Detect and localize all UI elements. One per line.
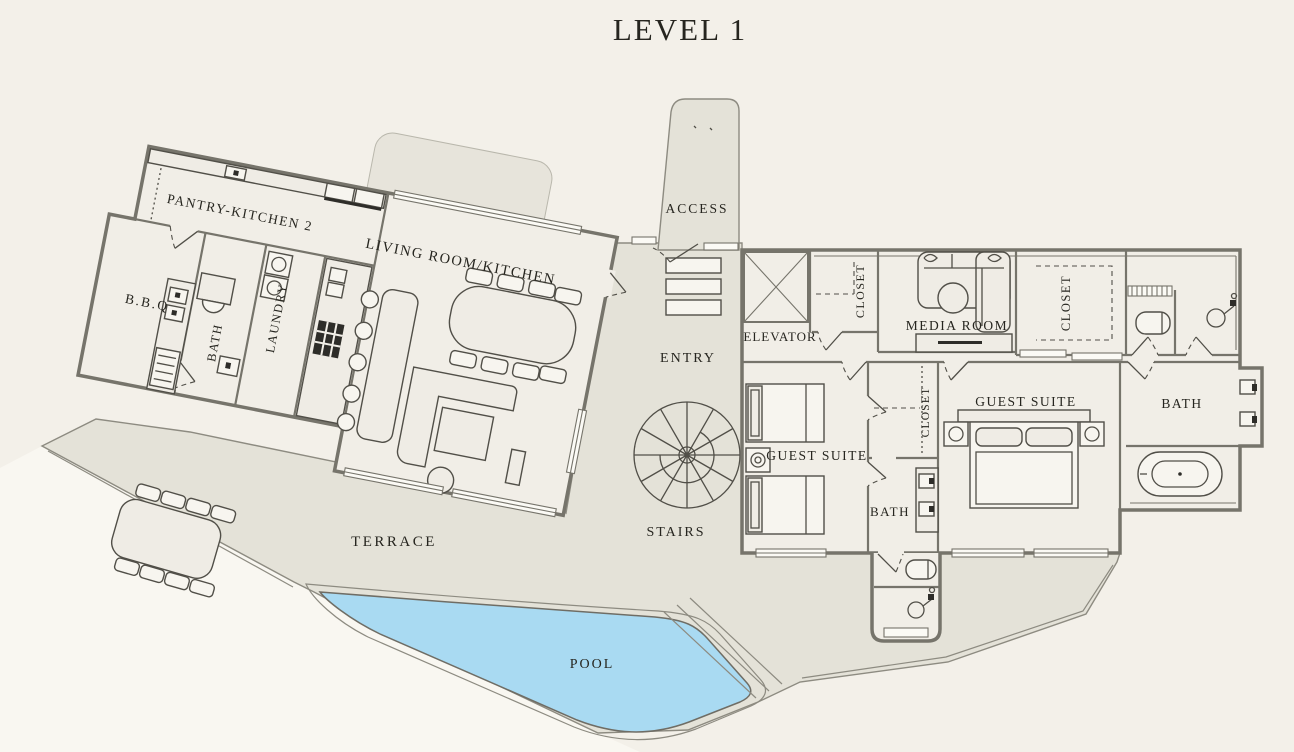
floor-plan-canvas: POOL TERRACE <box>0 0 1294 752</box>
sliding-door <box>1072 353 1122 360</box>
sink-icon <box>329 267 347 283</box>
shower-valve <box>928 594 934 600</box>
king-bed-icon <box>970 422 1078 508</box>
twin-bed-icon <box>746 384 824 442</box>
ottoman-icon <box>434 407 493 460</box>
entry-step <box>666 258 721 273</box>
faucet-icon <box>1252 384 1257 391</box>
faucet-icon <box>929 478 934 484</box>
elevator-label: ELEVATOR <box>743 329 816 344</box>
entry-step <box>666 279 721 294</box>
media-room-label: MEDIA ROOM <box>906 318 1008 333</box>
shower-valve <box>1230 300 1236 306</box>
shower-shelf <box>1128 286 1172 296</box>
entry-step <box>666 300 721 315</box>
window <box>632 237 656 244</box>
floor-plan-page: POOL TERRACE <box>0 0 1294 752</box>
bath-label: BATH <box>870 504 910 519</box>
entry-label: ENTRY <box>660 351 716 366</box>
pillow <box>976 428 1022 446</box>
toilet-icon <box>1136 312 1170 334</box>
guest-suite-label: GUEST SUITE <box>975 394 1076 409</box>
washer-icon <box>265 251 293 277</box>
faucet-icon <box>233 170 239 176</box>
window <box>884 628 928 637</box>
spiral-staircase-icon <box>634 402 740 508</box>
headboard <box>748 386 762 440</box>
window <box>704 243 738 250</box>
pillow <box>1026 428 1072 446</box>
ottoman-icon <box>938 283 968 313</box>
drain-icon <box>1178 472 1182 476</box>
pool-label: POOL <box>570 657 615 672</box>
page-title: LEVEL 1 <box>613 12 747 47</box>
closet-label: CLOSET <box>853 264 867 318</box>
faucet-icon <box>175 292 181 298</box>
closet-label: CLOSET <box>1059 275 1073 331</box>
toilet-icon <box>906 560 936 579</box>
headboard <box>748 478 762 532</box>
sink-icon <box>326 282 344 298</box>
faucet-icon <box>929 506 934 512</box>
twin-bed-icon <box>746 476 824 534</box>
terrace-label: TERRACE <box>351 534 437 550</box>
door-gap <box>878 548 904 558</box>
closet-label: CLOSET <box>920 387 932 438</box>
faucet-icon <box>1252 416 1257 423</box>
bath-label: BATH <box>1161 396 1202 411</box>
sliding-door <box>1020 350 1066 357</box>
headboard <box>958 410 1090 422</box>
nightstand-icon <box>1080 422 1104 446</box>
guest-suite-label: GUEST SUITE <box>766 448 867 463</box>
media-room: MEDIA ROOM <box>906 252 1012 352</box>
stairs-label: STAIRS <box>646 525 705 540</box>
faucet-icon <box>171 310 177 316</box>
access-path <box>658 99 739 250</box>
elevator: ELEVATOR <box>743 252 816 344</box>
access-label: ACCESS <box>665 201 728 216</box>
tv-icon <box>938 341 982 344</box>
nightstand-icon <box>944 422 968 446</box>
